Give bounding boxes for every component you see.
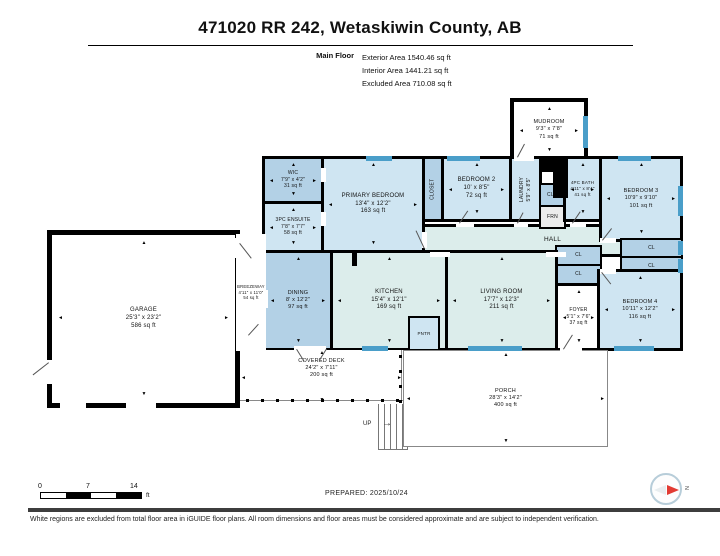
room-label: 3PC ENSUITE7'8" x 7'7"58 sq ft bbox=[276, 217, 311, 237]
door-opening bbox=[294, 346, 326, 351]
room-area: 72 sq ft bbox=[458, 193, 496, 201]
room-name: MUDROOM bbox=[533, 119, 564, 126]
room-area: 163 sq ft bbox=[342, 208, 405, 216]
wall-block bbox=[352, 250, 357, 266]
dimension-arrow-icon: ▲ bbox=[142, 241, 147, 246]
dimension-arrow-icon: ► bbox=[671, 308, 676, 313]
dimension-arrow-icon: ▲ bbox=[296, 257, 301, 262]
room-label: HALL bbox=[544, 236, 561, 244]
deck-post bbox=[276, 399, 279, 402]
dimension-arrow-icon: ▼ bbox=[581, 210, 586, 215]
room-area: 116 sq ft bbox=[622, 314, 658, 321]
deck-post bbox=[399, 355, 402, 358]
deck-post bbox=[336, 399, 339, 402]
dimension-arrow-icon: ▼ bbox=[504, 439, 509, 444]
room-dims: 24'2" x 7'11" bbox=[298, 365, 344, 372]
dimension-arrow-icon: ▼ bbox=[547, 148, 552, 153]
room-dims: 10'9" x 9'10" bbox=[624, 195, 659, 202]
dimension-arrow-icon: ▲ bbox=[638, 276, 643, 281]
dimension-arrow-icon: ◄ bbox=[269, 226, 274, 231]
window bbox=[366, 156, 392, 161]
room-label: CL bbox=[575, 271, 582, 278]
room-name: 3PC ENSUITE bbox=[276, 217, 311, 224]
prepared-date: PREPARED: 2025/10/24 bbox=[325, 490, 408, 497]
room-label: LIVING ROOM17'7" x 12'3"211 sq ft bbox=[480, 289, 522, 312]
room-area: 211 sq ft bbox=[480, 304, 522, 312]
room-label: WIC7'9" x 4'2"31 sq ft bbox=[281, 170, 305, 190]
room-living-room: LIVING ROOM17'7" x 12'3"211 sq ft▲▼◄► bbox=[445, 250, 558, 351]
room-label: BEDROOM 410'11" x 12'2"116 sq ft bbox=[622, 299, 658, 320]
door-opening bbox=[126, 403, 156, 408]
room-wic: WIC7'9" x 4'2"31 sq ft▲▼◄► bbox=[262, 156, 324, 204]
room-name: HALL bbox=[544, 236, 561, 244]
dimension-arrow-icon: ◄ bbox=[270, 299, 275, 304]
dimension-arrow-icon: ▼ bbox=[475, 210, 480, 215]
scale-segment bbox=[91, 493, 116, 498]
room-label: PRIMARY BEDROOM13'4" x 12'2"163 sq ft bbox=[342, 193, 405, 216]
dimension-arrow-icon: ► bbox=[312, 179, 317, 184]
room-label: FOYER5'1" x 7'6"37 sq ft bbox=[566, 307, 590, 327]
deck-post bbox=[399, 370, 402, 373]
room-name: LAUNDRY bbox=[519, 176, 526, 201]
dimension-arrow-icon: ► bbox=[500, 188, 505, 193]
room-name: DINING bbox=[286, 290, 310, 297]
room-name: FOYER bbox=[566, 307, 590, 314]
dimension-arrow-icon: ► bbox=[590, 188, 595, 193]
room-name: CL bbox=[575, 271, 582, 278]
room-name: GARAGE bbox=[126, 307, 162, 315]
dimension-arrow-icon: ▲ bbox=[504, 353, 509, 358]
room-area: 37 sq ft bbox=[566, 320, 590, 327]
room-laundry: LAUNDRY5'9" x 8'5" bbox=[509, 156, 542, 222]
dimension-arrow-icon: ▼ bbox=[638, 339, 643, 344]
room-dims: 28'3" x 14'2" bbox=[489, 395, 522, 402]
room-frn: FRN bbox=[539, 205, 566, 229]
room-foyer: FOYER5'1" x 7'6"37 sq ft▲▼◄► bbox=[555, 283, 602, 351]
room-primary-bedroom: PRIMARY BEDROOM13'4" x 12'2"163 sq ft▲▼◄… bbox=[321, 156, 425, 253]
room-mudroom: MUDROOM9'3" x 7'8"71 sq ft▲▼◄► bbox=[510, 98, 588, 162]
room-name: PRIMARY BEDROOM bbox=[342, 193, 405, 201]
north-arrow-icon bbox=[650, 473, 682, 505]
dimension-arrow-icon: ▼ bbox=[577, 339, 582, 344]
room-dining: DINING8' x 12'2"97 sq ft▲▼◄► bbox=[263, 250, 333, 351]
deck-post bbox=[246, 399, 249, 402]
disclaimer-text: White regions are excluded from total fl… bbox=[30, 516, 710, 523]
window bbox=[583, 116, 588, 148]
door-opening bbox=[430, 252, 450, 257]
room-label: CL bbox=[648, 245, 655, 252]
dimension-arrow-icon: ► bbox=[546, 299, 551, 304]
room-area: 71 sq ft bbox=[533, 134, 564, 141]
room-dims: 15'4" x 12'1" bbox=[371, 297, 407, 305]
room-label: LAUNDRY5'9" x 8'5" bbox=[519, 176, 532, 201]
dimension-arrow-icon: ◄ bbox=[519, 129, 524, 134]
dimension-arrow-icon: ▼ bbox=[500, 339, 505, 344]
deck-post bbox=[366, 399, 369, 402]
window bbox=[678, 241, 683, 255]
dimension-arrow-icon: ▲ bbox=[291, 208, 296, 213]
room-dims: 25'3" x 23'2" bbox=[126, 315, 162, 323]
room-name: BEDROOM 2 bbox=[458, 177, 496, 185]
room-dims: 13'4" x 12'2" bbox=[342, 201, 405, 209]
dimension-arrow-icon: ► bbox=[600, 397, 605, 402]
door-opening bbox=[321, 168, 326, 182]
room-area: 400 sq ft bbox=[489, 402, 522, 409]
room-label: PORCH28'3" x 14'2"400 sq ft bbox=[489, 388, 522, 409]
door-opening bbox=[546, 252, 566, 257]
room-name: PNTR bbox=[417, 331, 430, 337]
scale-segment bbox=[41, 493, 66, 498]
room-label: BEDROOM 310'9" x 9'10"101 sq ft bbox=[624, 188, 659, 209]
deck-post bbox=[399, 385, 402, 388]
room-label: GARAGE25'3" x 23'2"586 sq ft bbox=[126, 307, 162, 330]
dimension-arrow-icon: ◄ bbox=[269, 179, 274, 184]
dimension-arrow-icon: ▼ bbox=[291, 192, 296, 197]
room-label: MUDROOM9'3" x 7'8"71 sq ft bbox=[533, 119, 564, 140]
dimension-arrow-icon: ▲ bbox=[387, 257, 392, 262]
room-garage: GARAGE25'3" x 23'2"586 sq ft▲▼◄► bbox=[47, 230, 240, 408]
room-area: 200 sq ft bbox=[298, 372, 344, 379]
room-name: PORCH bbox=[489, 388, 522, 395]
deck-post bbox=[261, 399, 264, 402]
room-breezeway: BREEZEWAY4'11" x 11'0"54 sq ft bbox=[236, 234, 266, 351]
dimension-arrow-icon: ▲ bbox=[581, 163, 586, 168]
window bbox=[614, 346, 654, 351]
window bbox=[678, 259, 683, 273]
dimension-arrow-icon: ◄ bbox=[448, 188, 453, 193]
room-area: 586 sq ft bbox=[126, 323, 162, 331]
dimension-arrow-icon: ► bbox=[321, 299, 326, 304]
room-name: CL bbox=[648, 245, 655, 252]
room-name: CL bbox=[575, 252, 582, 259]
dimension-arrow-icon: ► bbox=[413, 203, 418, 208]
room-cl-4: CL bbox=[555, 264, 602, 285]
dimension-arrow-icon: ► bbox=[224, 316, 229, 321]
dimension-arrow-icon: ◄ bbox=[328, 203, 333, 208]
room-covered-deck: COVERED DECK24'2" x 7'11"200 sq ft▲▼◄► bbox=[240, 350, 403, 404]
room-dims: 10'11" x 12'2" bbox=[622, 306, 658, 313]
room-label: FRN bbox=[547, 214, 558, 221]
scale-segment bbox=[116, 493, 141, 498]
dimension-arrow-icon: ◄ bbox=[570, 188, 575, 193]
room-area: 97 sq ft bbox=[286, 304, 310, 311]
stairs-up-label: UP bbox=[363, 421, 371, 427]
dimension-arrow-icon: ▲ bbox=[577, 290, 582, 295]
dimension-arrow-icon: ▼ bbox=[291, 241, 296, 246]
room-porch: PORCH28'3" x 14'2"400 sq ft▲▼◄► bbox=[403, 350, 608, 447]
door-opening bbox=[321, 212, 326, 226]
room-label: PNTR bbox=[417, 331, 430, 337]
stairs-direction-icon: → bbox=[382, 419, 392, 429]
room-name: BEDROOM 4 bbox=[622, 299, 658, 306]
compass-needle-tail bbox=[654, 485, 666, 495]
room-area: 58 sq ft bbox=[276, 230, 311, 237]
door-opening bbox=[60, 403, 86, 408]
room-area: 54 sq ft bbox=[237, 295, 265, 300]
dimension-arrow-icon: ▲ bbox=[547, 107, 552, 112]
deck-post bbox=[399, 400, 402, 403]
deck-post bbox=[351, 399, 354, 402]
room-dims: 10' x 8'5" bbox=[458, 185, 496, 193]
room-name: COVERED DECK bbox=[298, 358, 344, 365]
room-label: KITCHEN15'4" x 12'1"169 sq ft bbox=[371, 289, 407, 312]
room-pantry: PNTR bbox=[408, 316, 440, 351]
dimension-arrow-icon: ► bbox=[590, 316, 595, 321]
dimension-arrow-icon: ▼ bbox=[371, 241, 376, 246]
room-dims: 8' x 12'2" bbox=[286, 297, 310, 304]
room-dims: 17'7" x 12'3" bbox=[480, 297, 522, 305]
wall-block bbox=[539, 156, 556, 172]
scale-bar-segments bbox=[40, 492, 142, 499]
room-name: BREEZEWAY bbox=[237, 284, 265, 289]
dimension-arrow-icon: ▲ bbox=[475, 163, 480, 168]
dimension-arrow-icon: ▼ bbox=[296, 339, 301, 344]
window bbox=[447, 156, 480, 161]
window bbox=[678, 186, 683, 216]
room-name: FRN bbox=[547, 214, 558, 221]
dimension-arrow-icon: ◄ bbox=[606, 197, 611, 202]
footer-divider bbox=[28, 508, 720, 512]
scale-bar: 0 7 14 ft bbox=[38, 483, 168, 503]
deck-post bbox=[381, 399, 384, 402]
dimension-arrow-icon: ▲ bbox=[639, 163, 644, 168]
dimension-arrow-icon: ▲ bbox=[500, 257, 505, 262]
scale-tick-14: 14 bbox=[130, 483, 138, 490]
dimension-arrow-icon: ▼ bbox=[142, 392, 147, 397]
dimension-arrow-icon: ► bbox=[574, 129, 579, 134]
room-label: COVERED DECK24'2" x 7'11"200 sq ft bbox=[298, 358, 344, 379]
window bbox=[618, 156, 651, 161]
room-label: DINING8' x 12'2"97 sq ft bbox=[286, 290, 310, 311]
room-name: KITCHEN bbox=[371, 289, 407, 297]
dimension-arrow-icon: ► bbox=[312, 226, 317, 231]
door-opening bbox=[235, 238, 240, 258]
dimension-arrow-icon: ◄ bbox=[604, 308, 609, 313]
scale-unit: ft bbox=[146, 492, 150, 499]
deck-post bbox=[321, 399, 324, 402]
scale-tick-7: 7 bbox=[86, 483, 90, 490]
room-cl-1: CL bbox=[620, 238, 683, 258]
dimension-arrow-icon: ◄ bbox=[241, 376, 246, 381]
dimension-arrow-icon: ► bbox=[671, 197, 676, 202]
floorplan-page: 471020 RR 242, Wetaskiwin County, AB Mai… bbox=[0, 0, 720, 556]
window bbox=[362, 346, 388, 351]
room-name: LIVING ROOM bbox=[480, 289, 522, 297]
room-name: BEDROOM 3 bbox=[624, 188, 659, 195]
room-ensuite-3pc: 3PC ENSUITE7'8" x 7'7"58 sq ft▲▼◄► bbox=[262, 201, 324, 253]
dimension-arrow-icon: ◄ bbox=[406, 397, 411, 402]
room-label: CLOSET bbox=[430, 178, 437, 199]
room-label: BREEZEWAY4'11" x 11'0"54 sq ft bbox=[237, 284, 265, 300]
scale-tick-0: 0 bbox=[38, 483, 42, 490]
room-bedroom-2: BEDROOM 210' x 8'5"72 sq ft▲▼◄► bbox=[441, 156, 512, 222]
room-dims: 5'9" x 8'5" bbox=[526, 176, 533, 201]
room-label: BEDROOM 210' x 8'5"72 sq ft bbox=[458, 177, 496, 200]
compass-north-label: N bbox=[683, 486, 689, 490]
room-label: CL bbox=[575, 252, 582, 259]
dimension-arrow-icon: ◄ bbox=[337, 299, 342, 304]
room-dims: 9'3" x 7'8" bbox=[533, 126, 564, 133]
deck-post bbox=[306, 399, 309, 402]
room-area: 31 sq ft bbox=[281, 183, 305, 190]
window bbox=[468, 346, 522, 351]
dimension-arrow-icon: ◄ bbox=[452, 299, 457, 304]
room-bath-4pc: 4PC BATH4'11" x 8'4"41 sq ft▲▼◄► bbox=[563, 156, 602, 222]
dimension-arrow-icon: ▲ bbox=[371, 163, 376, 168]
compass-needle-head bbox=[667, 485, 679, 495]
floorplan-canvas: UP → HALLMUDROOM9'3" x 7'8"71 sq ft▲▼◄►W… bbox=[0, 0, 720, 470]
door-opening bbox=[263, 290, 268, 308]
scale-segment bbox=[66, 493, 91, 498]
deck-post bbox=[291, 399, 294, 402]
dimension-arrow-icon: ▼ bbox=[639, 230, 644, 235]
room-area: 101 sq ft bbox=[624, 203, 659, 210]
dimension-arrow-icon: ▼ bbox=[387, 339, 392, 344]
dimension-arrow-icon: ◄ bbox=[562, 316, 567, 321]
room-area: 41 sq ft bbox=[570, 192, 594, 198]
room-area: 169 sq ft bbox=[371, 304, 407, 312]
room-name: CLOSET bbox=[430, 178, 437, 199]
dimension-arrow-icon: ► bbox=[436, 299, 441, 304]
dimension-arrow-icon: ◄ bbox=[58, 316, 63, 321]
dimension-arrow-icon: ▲ bbox=[291, 163, 296, 168]
